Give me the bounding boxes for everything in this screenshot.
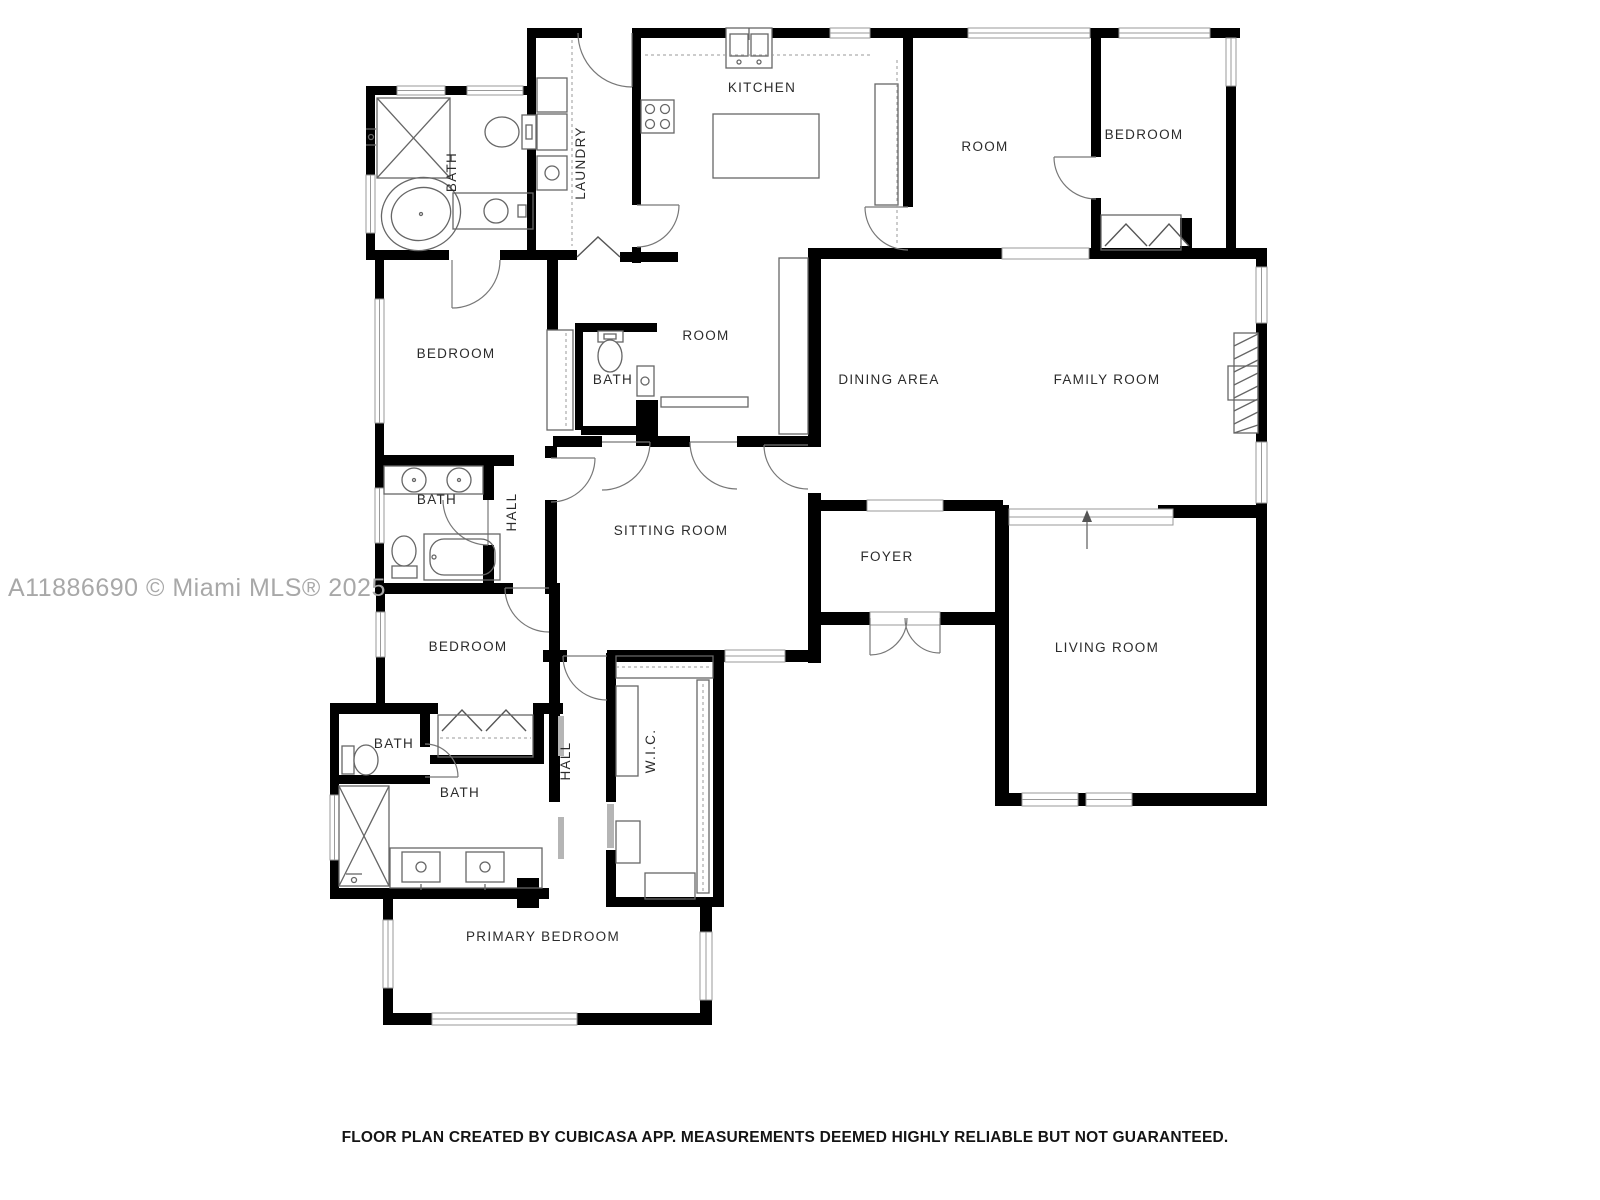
room-label-bath-primary: BATH: [440, 785, 480, 800]
room-label-foyer: FOYER: [860, 549, 913, 564]
mls-watermark: A11886690 © Miami MLS® 2025: [8, 574, 386, 602]
room-label-kitchen: KITCHEN: [728, 80, 796, 95]
window: [700, 932, 712, 1000]
room-label-room-mid: ROOM: [682, 328, 729, 343]
window: [830, 28, 870, 38]
sliding-door: [1009, 509, 1173, 525]
room-label-bath-2: BATH: [417, 492, 457, 507]
window: [968, 28, 1090, 38]
window: [725, 650, 785, 662]
room-label-bath-master: BATH: [444, 152, 459, 192]
stove-icon: [641, 100, 674, 133]
room-label-bedroom-top: BEDROOM: [1105, 127, 1184, 142]
window: [1226, 38, 1236, 86]
window: [1256, 267, 1267, 323]
room-label-dining-area: DINING AREA: [838, 372, 939, 387]
window: [432, 1013, 577, 1025]
window: [467, 86, 523, 95]
window: [397, 86, 445, 95]
window: [375, 299, 384, 423]
room-label-living-room: LIVING ROOM: [1055, 640, 1159, 655]
cased-opening: [1002, 248, 1089, 259]
window: [376, 612, 385, 657]
pocket-door-icon: [607, 804, 614, 848]
window: [1086, 793, 1132, 806]
room-label-wic: W.I.C.: [643, 729, 658, 774]
cased-opening: [867, 500, 943, 511]
window: [1022, 793, 1078, 806]
room-label-bedroom-3: BEDROOM: [429, 639, 508, 654]
room-label-hall-2: HALL: [558, 742, 573, 781]
window: [330, 795, 339, 860]
toilet-icon: [392, 536, 417, 578]
toilet-icon: [342, 745, 378, 775]
room-label-bedroom-mid: BEDROOM: [417, 346, 496, 361]
room-label-hall-1: HALL: [504, 493, 519, 532]
footer-disclaimer: FLOOR PLAN CREATED BY CUBICASA APP. MEAS…: [342, 1129, 1229, 1146]
room-label-primary-bedroom: PRIMARY BEDROOM: [466, 929, 620, 944]
room-label-family-room: FAMILY ROOM: [1054, 372, 1161, 387]
room-label-bath-3: BATH: [374, 736, 414, 751]
window: [366, 175, 375, 233]
window: [383, 920, 393, 988]
floor-plan: KITCHEN ROOM BEDROOM BATH LAUNDRY BEDROO…: [0, 0, 1600, 1200]
toilet-icon: [598, 331, 623, 372]
room-label-sitting-room: SITTING ROOM: [614, 523, 729, 538]
window: [1119, 28, 1210, 38]
room-label-room-top: ROOM: [961, 139, 1008, 154]
window: [1256, 442, 1267, 503]
kitchen-sink-icon: [726, 28, 772, 68]
toilet-icon: [485, 115, 536, 149]
pocket-door-icon: [558, 817, 564, 859]
room-label-laundry: LAUNDRY: [573, 126, 588, 199]
room-label-bath-small: BATH: [593, 372, 633, 387]
window: [375, 488, 384, 543]
